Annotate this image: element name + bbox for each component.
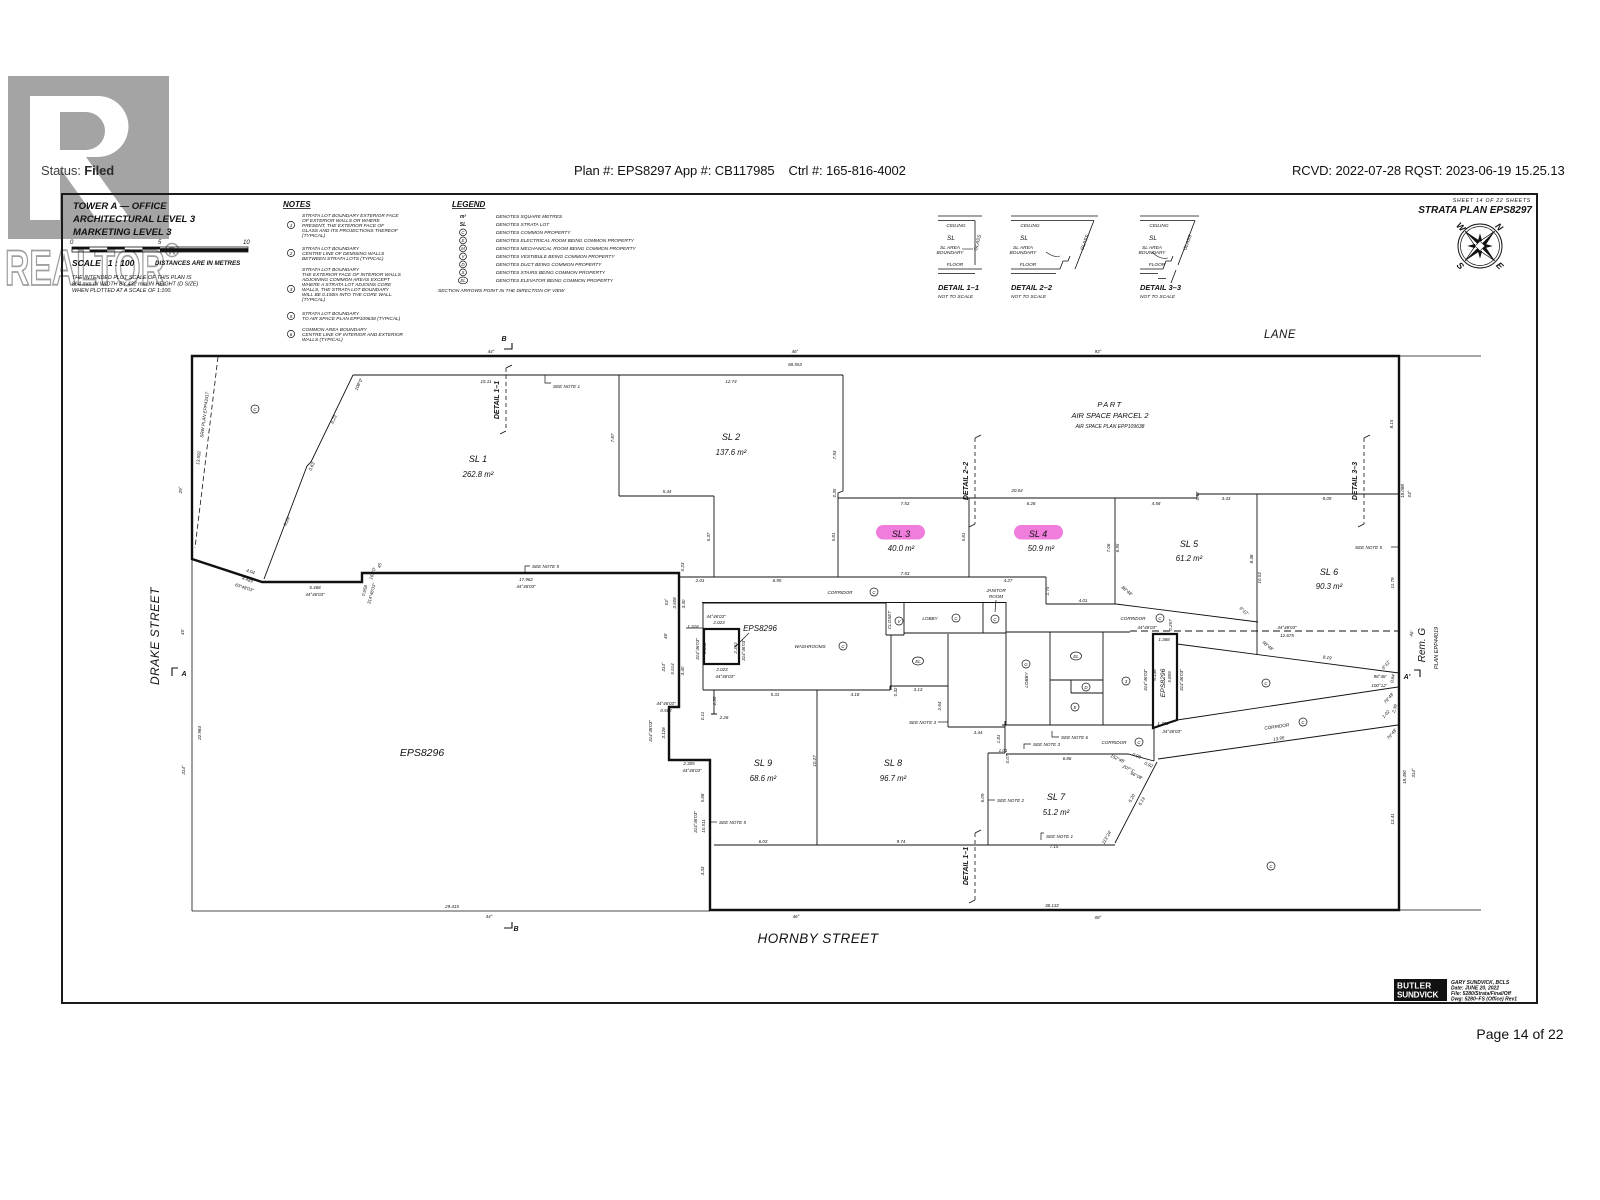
svg-text:EL: EL [460,278,466,283]
svg-text:22.984: 22.984 [197,726,202,741]
svg-text:5.68: 5.68 [700,793,705,802]
svg-text:GLASS: GLASS [973,233,983,251]
svg-text:100°12': 100°12' [1371,683,1386,688]
svg-text:(TYPICAL): (TYPICAL) [302,297,326,303]
svg-text:0.658: 0.658 [361,584,369,597]
svg-text:(TYPICAL): (TYPICAL) [302,233,326,239]
svg-text:45: 45 [376,562,382,569]
svg-text:44°: 44° [488,349,495,354]
svg-text:8.09: 8.09 [1323,496,1332,501]
svg-text:46': 46' [663,633,668,639]
svg-text:N: N [1493,221,1505,233]
svg-text:PLAN EPP44019: PLAN EPP44019 [1434,627,1440,669]
svg-text:THE INTENDED PLOT SCALE OF THI: THE INTENDED PLOT SCALE OF THIS PLAN IS [72,275,192,281]
svg-text:5.81: 5.81 [831,532,836,541]
svg-text:7.15: 7.15 [1050,844,1059,849]
svg-text:SRW PLAN EPP43317: SRW PLAN EPP43317 [199,391,210,438]
svg-text:3.30: 3.30 [681,599,686,608]
svg-text:CEILING: CEILING [1149,223,1168,229]
svg-text:SL: SL [1020,235,1028,242]
svg-text:DENOTES STAIRS BEING COMMON PR: DENOTES STAIRS BEING COMMON PROPERTY [496,270,606,276]
svg-text:3.128: 3.128 [661,727,666,739]
svg-text:2.26: 2.26 [719,715,729,720]
svg-text:E: E [1074,705,1077,710]
svg-text:262.8 m²: 262.8 m² [462,470,494,479]
svg-text:EPS8296: EPS8296 [743,624,777,633]
svg-text:1.35: 1.35 [712,696,717,705]
svg-text:44°46'03": 44°46'03" [516,584,536,589]
svg-text:314°: 314° [181,765,186,775]
svg-text:98°48': 98°48' [1262,640,1275,652]
svg-text:40.0 m²: 40.0 m² [888,544,915,553]
svg-text:SL: SL [1149,235,1157,242]
svg-text:WHEN PLOTTED AT A SCALE OF 1:1: WHEN PLOTTED AT A SCALE OF 1:100. [72,288,172,294]
svg-text:9.74: 9.74 [897,839,906,844]
svg-text:DRAKE STREET: DRAKE STREET [148,586,162,685]
svg-text:4.04: 4.04 [246,568,256,576]
svg-text:SEE NOTE 5: SEE NOTE 5 [719,820,747,825]
svg-text:1.75: 1.75 [1045,586,1050,595]
svg-text:12.41: 12.41 [1390,813,1395,825]
svg-text:10.53: 10.53 [1257,572,1262,584]
svg-text:12.675: 12.675 [1280,633,1294,638]
svg-text:DETAIL 3–3: DETAIL 3–3 [1140,283,1182,292]
svg-text:8.29: 8.29 [283,516,291,527]
svg-text:JANITOR: JANITOR [985,588,1006,593]
svg-text:10.27: 10.27 [812,755,817,767]
svg-text:SL 8: SL 8 [884,758,902,768]
svg-text:Rem. G: Rem. G [1417,628,1428,663]
svg-text:DENOTES ELEVATOR BEING COMMON: DENOTES ELEVATOR BEING COMMON PROPERTY [496,278,614,284]
svg-text:17.962: 17.962 [519,577,533,582]
svg-text:RCVD: 2022-07-28 RQST: 2023-06: RCVD: 2022-07-28 RQST: 2023-06-19 15.25.… [1292,163,1565,178]
svg-text:ARCHITECTURAL LEVEL 3: ARCHITECTURAL LEVEL 3 [72,214,196,225]
svg-text:SEE NOTE 5: SEE NOTE 5 [1355,545,1383,550]
svg-text:5.44: 5.44 [663,489,672,494]
svg-text:314°: 314° [661,662,666,672]
svg-text:SL 6: SL 6 [1320,567,1338,577]
svg-text:m²: m² [460,214,466,220]
svg-text:NOT TO SCALE: NOT TO SCALE [938,294,974,300]
svg-text:SCALE 1 : 100: SCALE 1 : 100 [72,258,135,268]
svg-text:2.305: 2.305 [682,761,695,766]
svg-text:5: 5 [290,314,293,319]
svg-text:CORRIDOR: CORRIDOR [827,590,853,595]
svg-text:18.088: 18.088 [1400,484,1405,498]
svg-text:DISTANCES ARE IN METRES: DISTANCES ARE IN METRES [155,260,241,267]
svg-text:LEGEND: LEGEND [452,200,486,209]
svg-text:SL 7: SL 7 [1047,792,1066,802]
svg-text:2.01: 2.01 [695,578,705,583]
svg-text:E: E [462,238,465,243]
svg-text:C: C [1137,740,1141,745]
svg-text:C: C [993,617,997,622]
svg-text:DENOTES MECHANICAL ROOM BEING: DENOTES MECHANICAL ROOM BEING COMMON PRO… [496,246,637,252]
svg-text:FLOOR: FLOOR [1020,262,1037,268]
svg-text:DETAIL 1–1: DETAIL 1–1 [963,847,970,885]
svg-text:3: 3 [1125,679,1128,684]
svg-text:LOBBY: LOBBY [922,616,938,621]
svg-text:C: C [461,230,465,235]
svg-text:7.53: 7.53 [901,571,910,576]
svg-text:7.87: 7.87 [610,433,615,442]
svg-text:0.257: 0.257 [1168,619,1173,631]
svg-text:10: 10 [243,240,250,246]
svg-text:51.2 m²: 51.2 m² [1043,808,1070,817]
svg-text:66°08': 66°08' [1130,771,1144,781]
svg-text:2.64: 2.64 [937,701,942,711]
svg-text:46°: 46° [793,914,800,919]
svg-text:Dwg: 5280–FS (Office) Rev1: Dwg: 5280–FS (Office) Rev1 [1451,997,1517,1003]
svg-text:SL 1: SL 1 [469,454,487,464]
svg-text:6: 6 [290,332,293,337]
svg-text:FLOOR: FLOOR [947,262,964,268]
svg-text:44°46'03": 44°46'03" [1277,625,1297,630]
svg-text:CLOSET: CLOSET [887,610,892,630]
svg-text:03°: 03° [664,598,669,605]
svg-text:0.07: 0.07 [1005,754,1010,763]
svg-text:9°12': 9°12' [1381,659,1391,670]
svg-text:113°24': 113°24' [1101,829,1113,844]
svg-text:314°46'03": 314°46'03" [695,638,700,660]
svg-text:46°: 46° [792,349,799,354]
svg-text:0.562: 0.562 [660,708,672,713]
svg-text:NOT TO SCALE: NOT TO SCALE [1011,294,1047,300]
svg-text:DENOTES ELECTRICAL ROOM BEING: DENOTES ELECTRICAL ROOM BEING COMMON PRO… [496,238,635,244]
svg-text:DETAIL 1–1: DETAIL 1–1 [938,283,979,292]
svg-text:TO AIR SPACE PLAN EPP109638 (T: TO AIR SPACE PLAN EPP109638 (TYPICAL) [302,316,401,322]
svg-text:BOUNDARY: BOUNDARY [1138,250,1166,256]
svg-text:STRATA PLAN EPS8297: STRATA PLAN EPS8297 [1418,205,1532,216]
svg-text:5.81: 5.81 [961,532,966,541]
svg-text:SL: SL [460,222,466,228]
svg-text:68.553: 68.553 [788,362,802,367]
svg-text:LOBBY: LOBBY [1024,671,1029,687]
svg-text:6.09: 6.09 [980,793,985,802]
svg-text:C: C [841,644,845,649]
svg-text:NOT TO SCALE: NOT TO SCALE [1140,294,1176,300]
svg-text:DENOTES COMMON PROPERTY: DENOTES COMMON PROPERTY [496,230,571,236]
svg-text:61.2 m²: 61.2 m² [1176,554,1203,563]
svg-text:3.44: 3.44 [974,730,983,735]
svg-text:88°48': 88°48' [1121,585,1134,597]
svg-text:SL 9: SL 9 [754,758,772,768]
svg-text:29°: 29° [178,486,183,494]
svg-text:3.43: 3.43 [1222,496,1231,501]
svg-text:79°48': 79°48' [1383,691,1395,704]
svg-text:Plan #: EPS8297 App #: CB11798: Plan #: EPS8297 App #: CB117985 Ctrl #: … [574,163,906,178]
svg-text:5.37: 5.37 [706,532,711,541]
svg-text:68.6 m²: 68.6 m² [750,774,777,783]
svg-text:3: 3 [290,287,293,292]
svg-text:314°46'03": 314°46'03" [1143,669,1148,691]
svg-text:EPS8296: EPS8296 [400,747,445,759]
svg-text:SUNDVICK: SUNDVICK [1397,991,1438,1000]
svg-text:0.98: 0.98 [1132,752,1143,760]
svg-text:5.468: 5.468 [309,585,321,590]
svg-text:108°0': 108°0' [354,377,364,391]
svg-text:8.38: 8.38 [1249,554,1254,563]
svg-text:98°48': 98°48' [1374,674,1387,679]
svg-text:0.35: 0.35 [832,488,837,497]
svg-text:DETAIL 3–3: DETAIL 3–3 [1352,462,1359,500]
svg-text:1: 1 [290,223,293,228]
svg-text:1.81: 1.81 [996,734,1001,743]
svg-text:2.39: 2.39 [1391,703,1398,714]
svg-text:0.11: 0.11 [700,711,705,720]
svg-text:EL: EL [1073,654,1079,659]
svg-text:SECTION ARROWS POINT IN THE DI: SECTION ARROWS POINT IN THE DIRECTION OF… [438,288,565,294]
svg-text:SEE NOTE 1: SEE NOTE 1 [1046,834,1074,839]
svg-text:314°46'03": 314°46'03" [366,582,377,605]
svg-text:44°46'03": 44°46'03" [305,592,325,597]
svg-text:SEE NOTE 1: SEE NOTE 1 [553,384,581,389]
svg-text:0.92: 0.92 [1144,761,1155,769]
svg-text:DENOTES DUCT BEING COMMON PROP: DENOTES DUCT BEING COMMON PROPERTY [496,262,602,268]
svg-text:C: C [954,616,958,621]
svg-text:8.15: 8.15 [1389,419,1394,428]
svg-text:NOTES: NOTES [283,200,311,209]
svg-text:1.02: 1.02 [1381,709,1391,719]
svg-text:HORNBY STREET: HORNBY STREET [757,931,879,946]
svg-text:96.7 m²: 96.7 m² [880,774,907,783]
svg-text:DETAIL 2–2: DETAIL 2–2 [963,462,970,500]
svg-text:1.368: 1.368 [1158,637,1170,642]
svg-text:EPS8296: EPS8296 [1160,668,1167,697]
svg-text:2: 2 [289,251,293,256]
svg-text:CEILING: CEILING [1020,223,1039,229]
svg-text:4.58: 4.58 [1152,501,1161,506]
svg-text:6.95: 6.95 [773,578,782,583]
svg-text:8.19: 8.19 [1323,654,1333,660]
svg-text:4.01: 4.01 [1079,598,1088,603]
svg-text:WASHROOMS: WASHROOMS [794,644,826,649]
svg-text:0.17: 0.17 [1195,491,1200,500]
svg-text:314°46'03": 314°46'03" [693,811,698,833]
svg-text:314°46'03": 314°46'03" [741,639,746,661]
svg-text:BOUNDARY: BOUNDARY [936,250,964,256]
svg-text:63°48'03": 63°48'03" [235,582,255,593]
svg-text:20.04: 20.04 [1010,488,1023,493]
svg-text:0.63: 0.63 [308,461,316,472]
svg-text:152°48': 152°48' [1110,753,1126,764]
svg-text:2.392: 2.392 [733,642,738,655]
svg-text:6.28: 6.28 [1027,501,1036,506]
svg-text:7.53: 7.53 [901,501,910,506]
svg-text:DENOTES STRATA LOT: DENOTES STRATA LOT [496,222,550,228]
svg-text:7.93: 7.93 [832,450,837,459]
svg-text:79°48': 79°48' [1386,727,1398,740]
svg-text:864 mm IN WIDTH BY 432 mm IN H: 864 mm IN WIDTH BY 432 mm IN HEIGHT (D S… [72,282,199,288]
svg-text:3.40: 3.40 [680,666,685,675]
svg-text:2.023: 2.023 [712,620,725,625]
svg-text:SEE NOTE 6: SEE NOTE 6 [1061,735,1089,740]
svg-text:SL 3: SL 3 [892,529,910,539]
svg-text:BUTLER: BUTLER [1397,982,1431,991]
svg-text:15.11: 15.11 [481,379,492,384]
svg-text:1.369: 1.369 [1157,721,1169,726]
svg-text:Page 14 of 22: Page 14 of 22 [1476,1026,1563,1042]
svg-text:AIR SPACE PARCEL 2: AIR SPACE PARCEL 2 [1070,411,1149,420]
svg-text:MARKETING LEVEL 3: MARKETING LEVEL 3 [73,227,172,238]
svg-text:4.33: 4.33 [700,866,705,875]
svg-text:6.95: 6.95 [1115,543,1120,552]
svg-text:Status: Filed: Status: Filed [41,163,114,178]
svg-text:E: E [1494,260,1506,272]
svg-text:SL 2: SL 2 [722,432,740,442]
svg-text:08°: 08° [1095,915,1102,920]
svg-text:BETWEEN STRATA LOTS (TYPICAL): BETWEEN STRATA LOTS (TYPICAL) [302,256,384,262]
svg-text:12.74: 12.74 [725,379,737,384]
svg-text:314°: 314° [1411,768,1416,778]
svg-text:WALLS (TYPICAL): WALLS (TYPICAL) [302,337,343,343]
svg-text:EL: EL [915,659,921,664]
svg-text:1.01: 1.01 [999,748,1008,753]
svg-text:3.13: 3.13 [914,687,923,692]
svg-text:M: M [461,246,465,251]
svg-text:DENOTES SQUARE METRES: DENOTES SQUARE METRES [496,214,563,220]
svg-text:0.23: 0.23 [680,562,685,571]
svg-text:5.31: 5.31 [771,692,780,697]
svg-text:SL 5: SL 5 [1180,539,1199,549]
svg-text:C: C [253,407,257,412]
svg-text:GLASS: GLASS [1080,233,1091,251]
svg-text:SEE NOTE 2: SEE NOTE 2 [997,798,1025,803]
svg-text:10.511: 10.511 [701,819,706,833]
svg-text:44°46'03": 44°46'03" [1137,625,1157,630]
svg-text:2.023: 2.023 [715,667,728,672]
svg-text:6.03: 6.03 [759,839,768,844]
svg-text:38.132: 38.132 [1045,903,1059,908]
svg-text:A: A [180,671,186,678]
svg-text:B: B [513,926,518,933]
svg-text:D: D [461,262,465,267]
svg-text:4.27: 4.27 [1004,578,1013,583]
svg-text:44°46'03": 44°46'03" [706,614,726,619]
svg-text:AIR SPACE PLAN EPP109638: AIR SPACE PLAN EPP109638 [1075,424,1145,430]
svg-text:DETAIL 2–2: DETAIL 2–2 [1011,283,1053,292]
svg-text:3.508: 3.508 [672,597,677,609]
svg-text:7.06: 7.06 [1106,543,1111,552]
svg-text:C: C [1264,681,1268,686]
svg-text:50.9 m²: 50.9 m² [1028,544,1055,553]
svg-text:C: C [872,590,876,595]
svg-text:PART: PART [1097,400,1122,409]
svg-text:GLASS: GLASS [1183,233,1194,251]
svg-text:0.84: 0.84 [1389,673,1396,683]
svg-text:C: C [1158,616,1162,621]
svg-text:18.490: 18.490 [1402,770,1407,784]
svg-text:03°: 03° [1407,490,1412,497]
svg-text:1.316: 1.316 [687,624,699,629]
svg-text:5.514: 5.514 [670,663,675,675]
svg-text:DETAIL 1–1: DETAIL 1–1 [494,381,501,419]
svg-text:2.392: 2.392 [702,642,707,655]
svg-text:C: C [1269,864,1273,869]
svg-text:CORRIDOR: CORRIDOR [1120,616,1146,621]
svg-text:44°46'03": 44°46'03" [682,768,702,773]
svg-text:SEE NOTE 3: SEE NOTE 3 [1033,742,1061,747]
svg-text:93°: 93° [1095,349,1102,354]
svg-text:44°46'03": 44°46'03" [656,701,676,706]
svg-text:314°46'03": 314°46'03" [1179,669,1184,691]
svg-text:SEE NOTE 5: SEE NOTE 5 [532,564,560,569]
svg-text:34°46'03": 34°46'03" [1162,729,1182,734]
svg-text:90.3 m²: 90.3 m² [1316,582,1343,591]
svg-text:5.859: 5.859 [1167,671,1172,683]
svg-text:V: V [462,254,466,259]
svg-text:BOUNDARY: BOUNDARY [1009,250,1037,256]
svg-text:FLOOR: FLOOR [1149,262,1166,268]
svg-text:9°12': 9°12' [1238,606,1249,616]
svg-text:44°: 44° [486,914,493,919]
svg-text:45': 45' [180,629,185,635]
svg-text:11.79: 11.79 [1390,577,1395,588]
svg-text:C: C [1301,720,1305,725]
svg-text:44°46'03": 44°46'03" [715,674,735,679]
svg-text:6.23: 6.23 [330,414,338,425]
svg-text:CORRIDOR: CORRIDOR [1101,740,1127,745]
svg-text:29.415: 29.415 [444,904,459,909]
svg-text:314°48'03": 314°48'03" [648,720,653,742]
svg-text:ROOM: ROOM [989,594,1003,599]
svg-text:6.86: 6.86 [1063,756,1072,761]
svg-text:4.18: 4.18 [851,692,860,697]
svg-text:4.489: 4.489 [241,575,254,583]
svg-text:CEILING: CEILING [946,223,965,229]
svg-text:6.20: 6.20 [1127,793,1136,804]
svg-text:G: G [1024,662,1028,667]
svg-text:SHEET 14 OF 22 SHEETS: SHEET 14 OF 22 SHEETS [1453,198,1531,204]
svg-text:46': 46' [1408,630,1414,637]
svg-text:D: D [1084,685,1088,690]
svg-text:DENOTES VESTIBULE BEING COMMON: DENOTES VESTIBULE BEING COMMON PROPERTY [496,254,615,260]
svg-text:LANE: LANE [1264,329,1296,341]
svg-text:8.138: 8.138 [1152,669,1157,681]
svg-text:TOWER A — OFFICE: TOWER A — OFFICE [73,201,167,212]
svg-text:0.32: 0.32 [893,687,898,696]
svg-text:CORRIDOR: CORRIDOR [1264,722,1290,731]
svg-text:S: S [1455,260,1466,271]
svg-text:A': A' [1403,674,1411,681]
svg-text:S: S [462,270,465,275]
svg-text:V: V [898,619,902,624]
svg-text:SEE NOTE 3: SEE NOTE 3 [909,720,937,725]
svg-text:SL 4: SL 4 [1029,529,1047,539]
svg-text:SL: SL [947,235,955,242]
svg-text:13.592: 13.592 [195,450,202,465]
svg-text:137.6 m²: 137.6 m² [716,448,747,457]
svg-text:B: B [501,336,506,343]
